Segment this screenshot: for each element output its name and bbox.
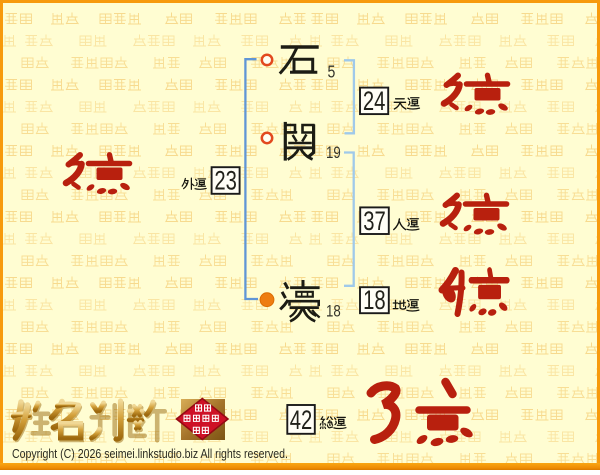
svg-text:Copyright (C) 2026 seimei.link: Copyright (C) 2026 seimei.linkstudio.biz… [12,446,288,461]
svg-text:23: 23 [214,166,237,197]
svg-text:5: 5 [327,62,335,82]
svg-text:18: 18 [326,302,341,321]
svg-text:24: 24 [363,86,386,117]
svg-text:42: 42 [290,405,313,436]
svg-text:37: 37 [363,206,386,237]
svg-text:19: 19 [326,144,341,163]
svg-text:18: 18 [363,285,386,316]
